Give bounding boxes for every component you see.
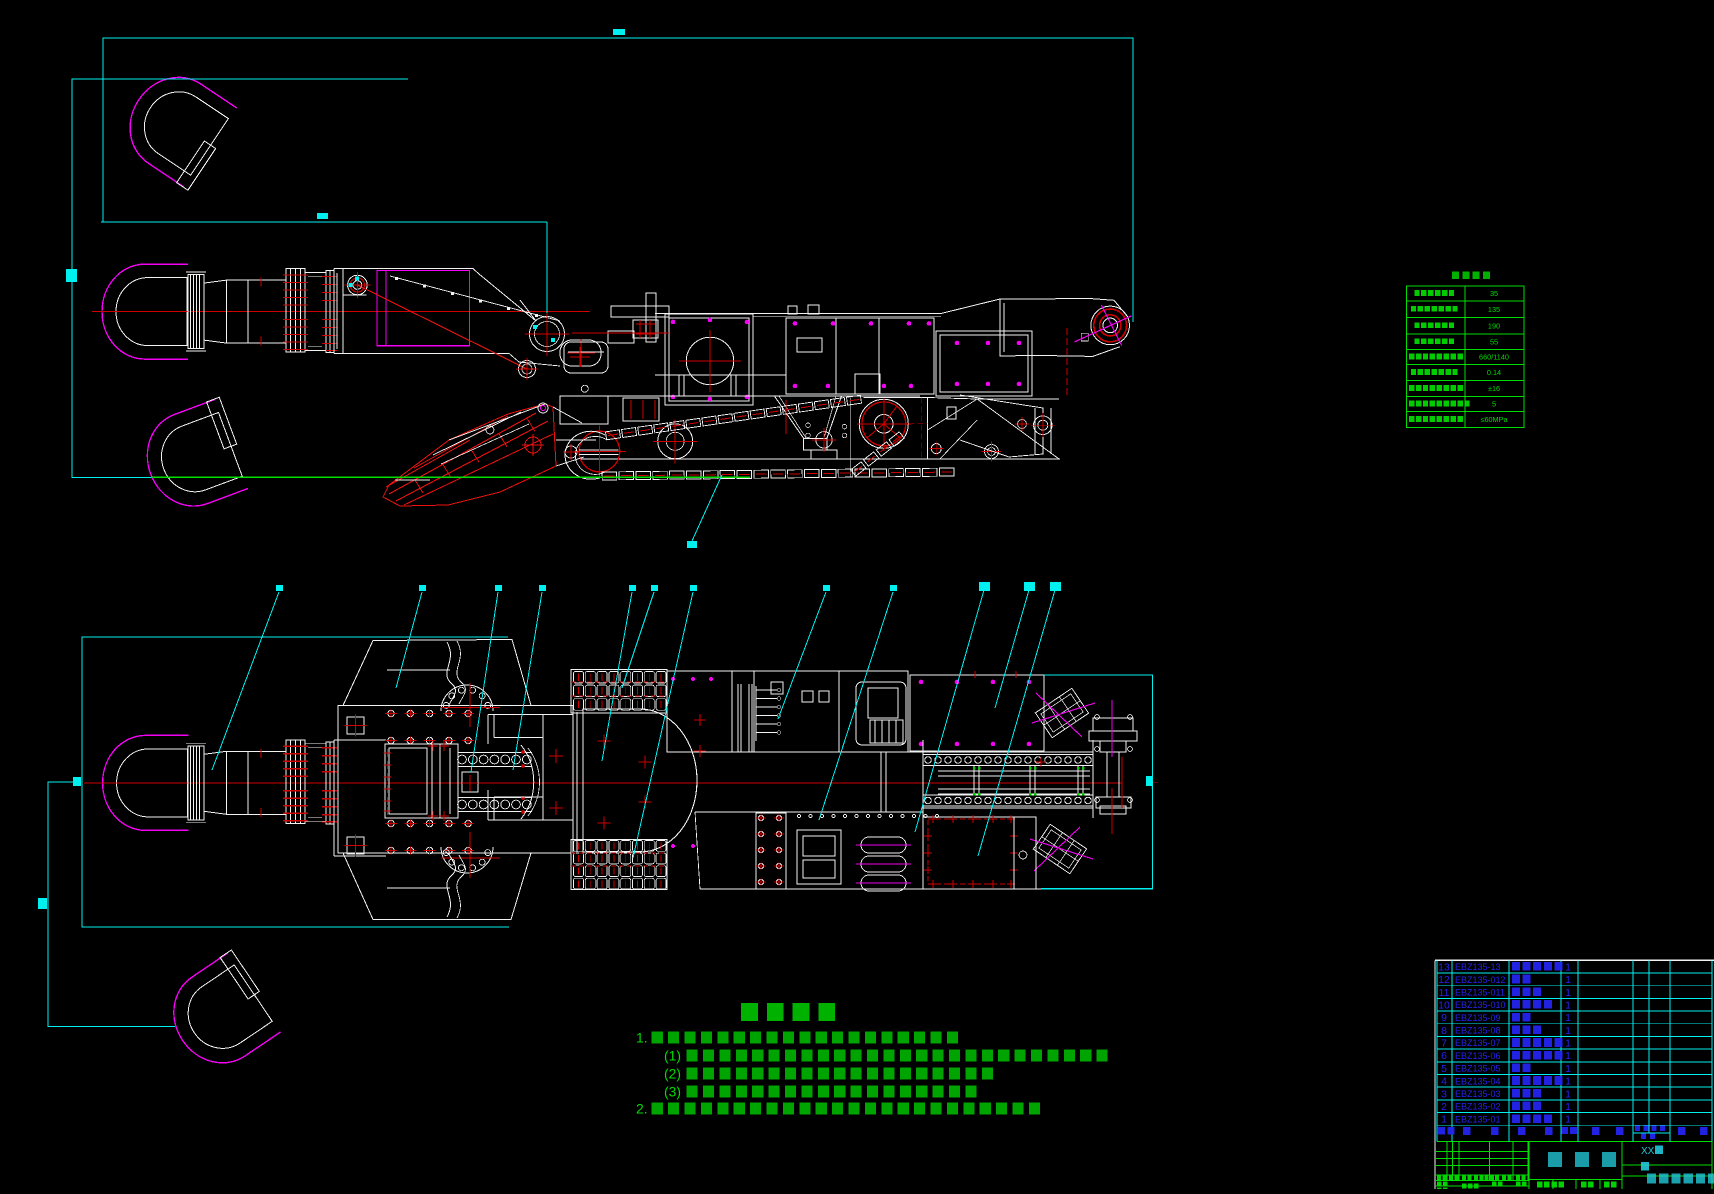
svg-text:1: 1 bbox=[1565, 1038, 1571, 1050]
svg-text:3: 3 bbox=[1441, 1088, 1447, 1100]
svg-text:≤60MPa: ≤60MPa bbox=[1480, 415, 1508, 424]
svg-text:35: 35 bbox=[1490, 289, 1498, 298]
svg-text:EBZ135-08: EBZ135-08 bbox=[1455, 1026, 1501, 1036]
svg-text:660/1140: 660/1140 bbox=[1479, 353, 1509, 362]
svg-text:1: 1 bbox=[1441, 1114, 1447, 1126]
svg-text:1: 1 bbox=[1565, 1050, 1571, 1062]
svg-text:2.: 2. bbox=[636, 1100, 648, 1116]
svg-text:1: 1 bbox=[1565, 1012, 1571, 1024]
svg-text:(3): (3) bbox=[664, 1083, 681, 1099]
svg-text:EBZ135-03: EBZ135-03 bbox=[1455, 1089, 1501, 1099]
svg-text:XX: XX bbox=[1641, 1146, 1655, 1157]
svg-text:6: 6 bbox=[1441, 1050, 1447, 1062]
svg-text:5: 5 bbox=[1441, 1063, 1447, 1075]
svg-text:(2): (2) bbox=[664, 1065, 681, 1081]
svg-text:1: 1 bbox=[1565, 974, 1571, 986]
svg-text:0.14: 0.14 bbox=[1487, 368, 1501, 377]
svg-text:4: 4 bbox=[1441, 1076, 1447, 1088]
svg-text:2: 2 bbox=[1441, 1101, 1447, 1113]
svg-text:(1): (1) bbox=[664, 1047, 681, 1063]
svg-text:1: 1 bbox=[1565, 961, 1571, 973]
svg-text:1: 1 bbox=[1565, 1063, 1571, 1075]
svg-text:1: 1 bbox=[1565, 1088, 1571, 1100]
svg-text:EBZ135-13: EBZ135-13 bbox=[1455, 962, 1501, 972]
svg-text:EBZ135-09: EBZ135-09 bbox=[1455, 1013, 1501, 1023]
svg-text:9: 9 bbox=[1441, 1012, 1447, 1024]
svg-text:135: 135 bbox=[1488, 305, 1500, 314]
svg-text:12: 12 bbox=[1438, 974, 1450, 986]
svg-text:EBZ135-010: EBZ135-010 bbox=[1455, 1000, 1506, 1010]
svg-text:55: 55 bbox=[1490, 337, 1498, 346]
svg-text:EBZ135-05: EBZ135-05 bbox=[1455, 1064, 1501, 1074]
svg-text:8: 8 bbox=[1441, 1025, 1447, 1037]
svg-text:1: 1 bbox=[1565, 987, 1571, 999]
svg-text:190: 190 bbox=[1488, 321, 1500, 330]
svg-text:1: 1 bbox=[1565, 1025, 1571, 1037]
svg-text:EBZ135-011: EBZ135-011 bbox=[1455, 988, 1505, 998]
svg-text:7: 7 bbox=[1441, 1038, 1447, 1050]
svg-text:5: 5 bbox=[1492, 400, 1496, 409]
svg-text:±16: ±16 bbox=[1488, 384, 1500, 393]
svg-text:EBZ135-07: EBZ135-07 bbox=[1455, 1038, 1501, 1048]
svg-text:EBZ135-02: EBZ135-02 bbox=[1455, 1102, 1501, 1112]
svg-text:EBZ135-06: EBZ135-06 bbox=[1455, 1051, 1501, 1061]
svg-text:10: 10 bbox=[1438, 1000, 1450, 1012]
svg-text:EBZ135-04: EBZ135-04 bbox=[1455, 1076, 1501, 1086]
svg-text:1: 1 bbox=[1565, 1000, 1571, 1012]
svg-text:1.: 1. bbox=[636, 1029, 648, 1045]
svg-text:EBZ135-012: EBZ135-012 bbox=[1455, 975, 1506, 985]
svg-text:1: 1 bbox=[1565, 1101, 1571, 1113]
svg-text:13: 13 bbox=[1438, 961, 1450, 973]
svg-text:1: 1 bbox=[1565, 1076, 1571, 1088]
svg-text:11: 11 bbox=[1439, 987, 1450, 999]
svg-text:1: 1 bbox=[1565, 1114, 1571, 1126]
svg-text:EBZ135-01: EBZ135-01 bbox=[1455, 1114, 1501, 1124]
